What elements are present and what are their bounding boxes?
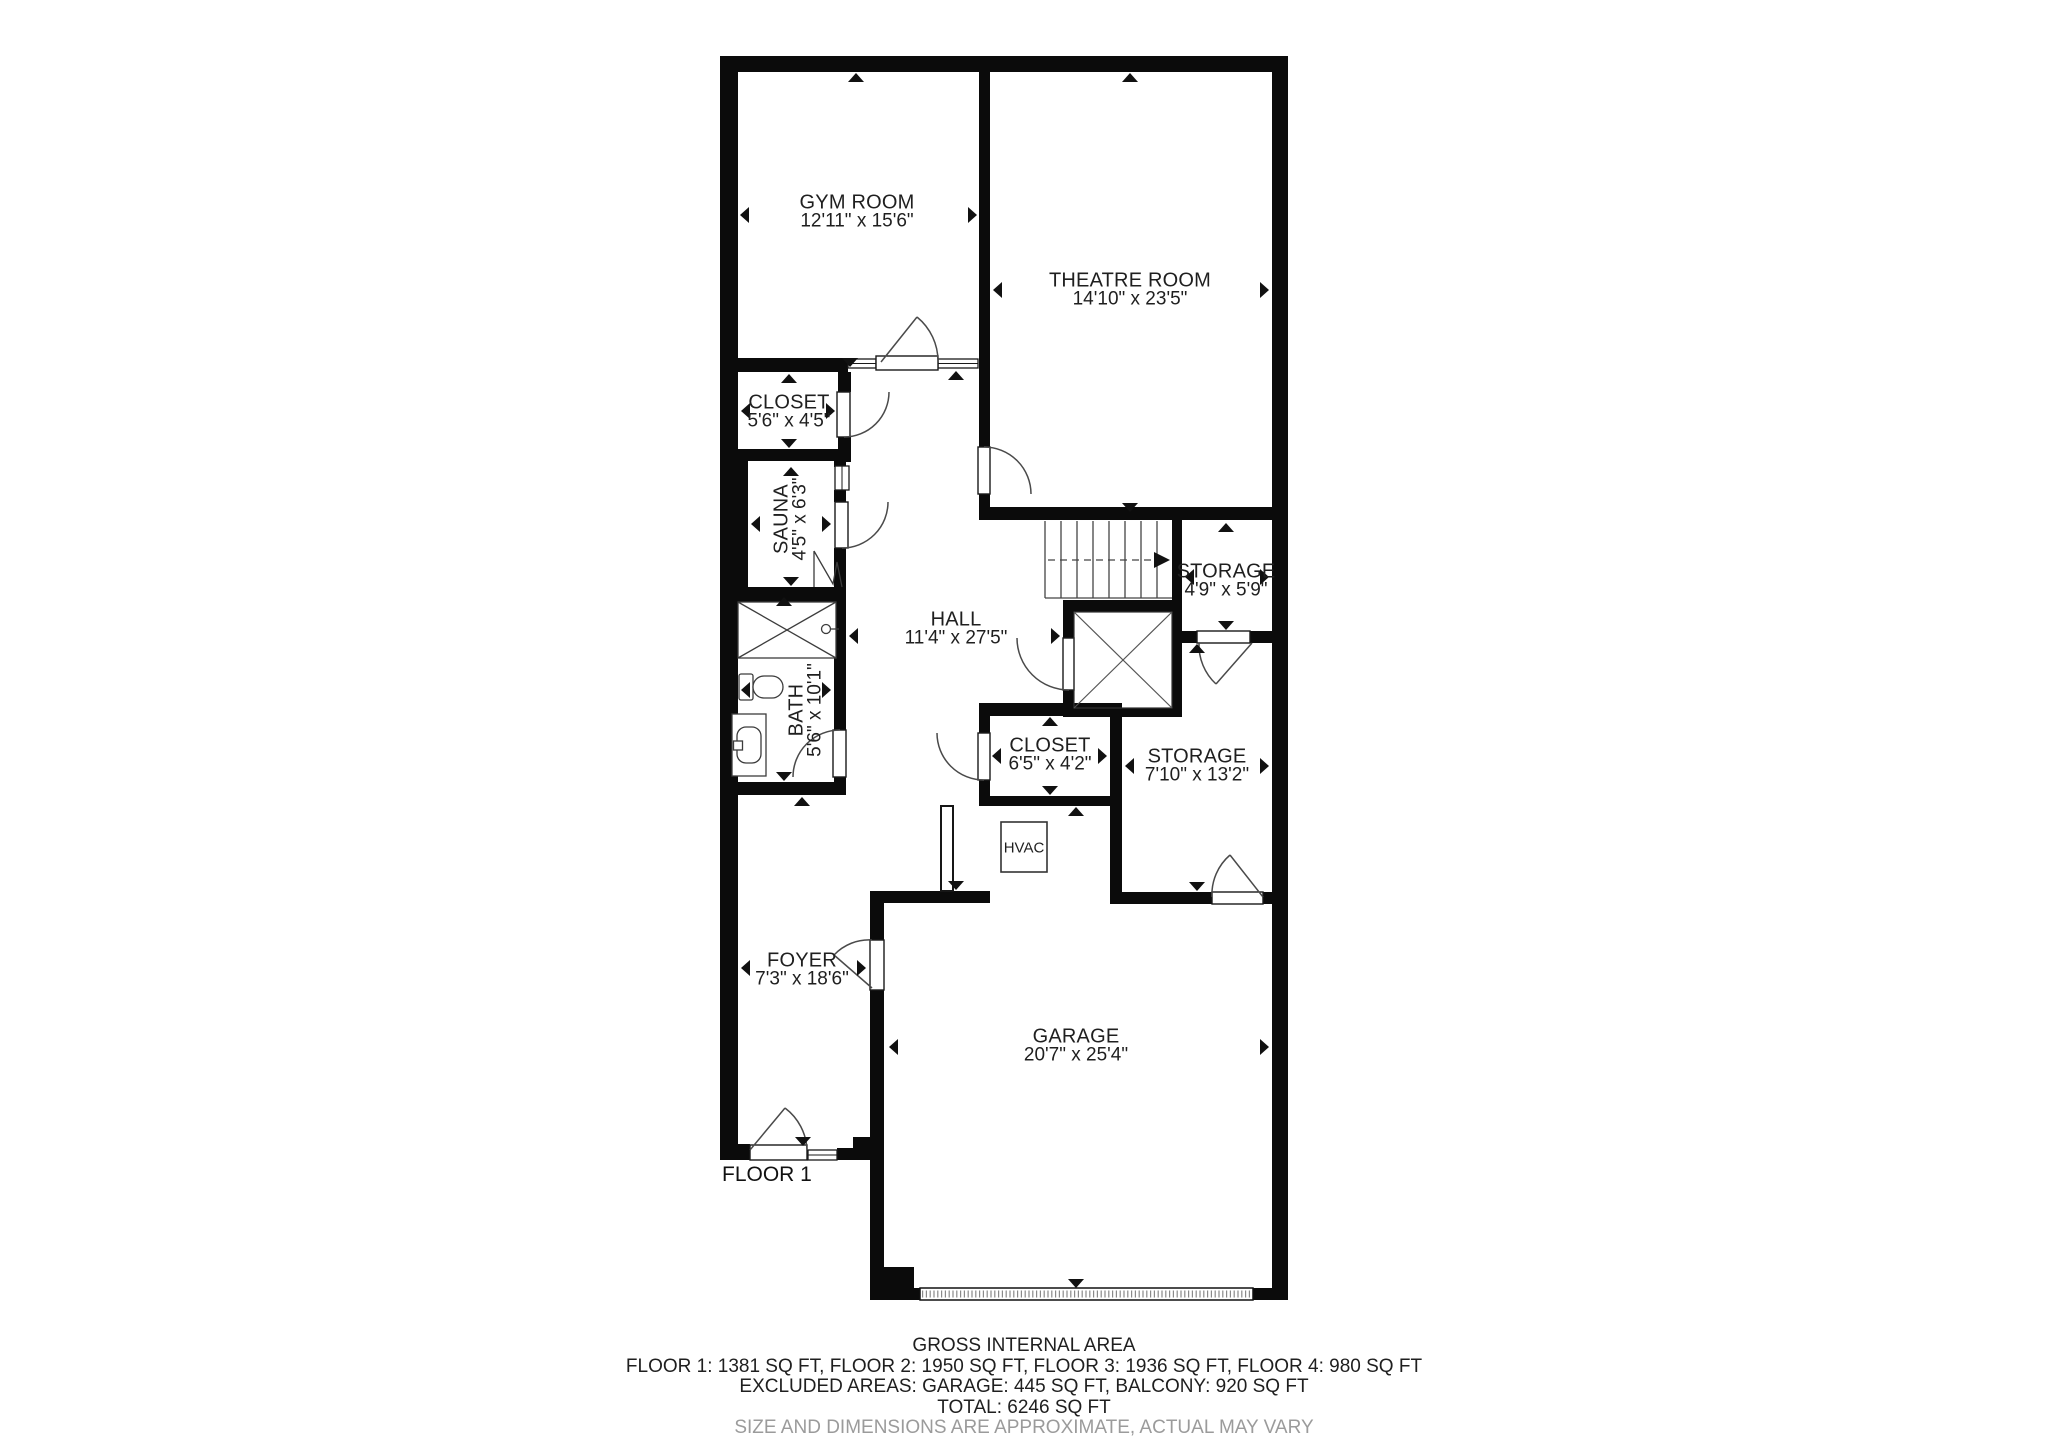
room-name: CLOSET [1008, 738, 1091, 756]
room-label-garage: GARAGE 20'7" x 25'4" [1024, 1029, 1128, 1064]
room-dims: 7'10" x 13'2" [1145, 766, 1249, 784]
dimension-arrow [1068, 807, 1084, 816]
dimension-arrow [992, 748, 1001, 764]
room-dims: 7'3" x 18'6" [755, 970, 849, 988]
wall-segment [979, 796, 1122, 806]
room-label-hvac: HVAC [1004, 840, 1045, 857]
door-arcs [750, 317, 1263, 1150]
shower [738, 602, 839, 658]
wall-segment [979, 716, 990, 733]
wall-segment [1172, 520, 1182, 717]
room-name: FOYER [755, 953, 849, 971]
dimension-arrow [794, 797, 810, 806]
door-leaf [1063, 638, 1074, 690]
dimension-arrow [741, 960, 750, 976]
room-name: SAUNA [774, 477, 792, 560]
wall-segment [738, 449, 851, 461]
room-label-hall: HALL 11'4" x 27'5" [905, 612, 1008, 647]
room-dims: 4'5" x 6'3" [791, 477, 809, 560]
dimension-arrow [783, 467, 799, 476]
dimension-arrow [1260, 282, 1269, 298]
wall-segment [979, 507, 1272, 520]
floorplan-page: GYM ROOM 12'11" x 15'6" THEATRE ROOM 14'… [0, 0, 2048, 1447]
area-summary-disclaimer: SIZE AND DIMENSIONS ARE APPROXIMATE, ACT… [0, 1418, 2048, 1439]
dimension-arrow [781, 374, 797, 383]
door-leaf [750, 1145, 807, 1160]
dimension-arrow [1068, 1279, 1084, 1288]
room-label-theatre-room: THEATRE ROOM 14'10" x 23'5" [1049, 273, 1211, 308]
door-leaf [978, 447, 990, 494]
wall-segment [853, 1137, 884, 1160]
wall-segment [979, 72, 990, 447]
wall-segment [870, 1288, 922, 1300]
stairs-direction-arrow [1154, 552, 1170, 568]
area-summary-title: GROSS INTERNAL AREA [0, 1336, 2048, 1357]
wall-segment [738, 358, 848, 372]
door-arc [844, 392, 889, 437]
area-summary: GROSS INTERNAL AREA FLOOR 1: 1381 SQ FT,… [0, 1336, 2048, 1439]
wall-segment [1272, 56, 1288, 1300]
room-label-bath: BATH 5'6" x 10'1" [789, 663, 824, 757]
dimension-arrow [1098, 748, 1107, 764]
floorplan-drawing [0, 0, 2048, 1447]
room-dims: 4'9" x 5'9" [1177, 581, 1276, 599]
wall-segment [1253, 1288, 1288, 1300]
dimension-arrow [783, 577, 799, 586]
wall-segment [1250, 631, 1288, 643]
dimension-arrow [1122, 73, 1138, 82]
wall-segment [838, 372, 851, 392]
floor-tag: FLOOR 1 [722, 1163, 812, 1187]
room-name: STORAGE [1145, 749, 1249, 767]
door-arc [1017, 638, 1069, 690]
dimension-arrow [948, 371, 964, 380]
dimension-arrow [776, 772, 792, 781]
door-arc [1199, 643, 1252, 684]
thin-partition-wall [941, 806, 953, 891]
room-label-gym-room: GYM ROOM 12'11" x 15'6" [800, 195, 915, 230]
wall-segment [738, 461, 748, 595]
area-summary-total: TOTAL: 6246 SQ FT [0, 1398, 2048, 1419]
room-name: CLOSET [747, 395, 830, 413]
room-label-storage-small: STORAGE 4'9" x 5'9" [1177, 564, 1276, 599]
room-label-sauna: SAUNA 4'5" x 6'3" [774, 477, 809, 560]
wall-segment [834, 490, 846, 502]
dimension-arrow [1051, 628, 1060, 644]
staircase [1045, 521, 1172, 598]
door-leaf [876, 356, 938, 370]
door-arc [881, 317, 938, 362]
dimension-arrow [849, 628, 858, 644]
dimension-arrow [822, 516, 831, 532]
wall-segment [1063, 708, 1182, 717]
dimension-arrow [1260, 758, 1269, 774]
dimension-arrow [781, 439, 797, 448]
room-dims: 6'5" x 4'2" [1008, 755, 1091, 773]
dimension-arrow [1218, 523, 1234, 532]
garage-door [920, 1288, 1253, 1300]
dimension-arrow [1042, 786, 1058, 795]
dimension-arrow [889, 1039, 898, 1055]
dimension-arrow [751, 516, 760, 532]
room-label-closet-mid: CLOSET 6'5" x 4'2" [1008, 738, 1091, 773]
door-leaf [1212, 892, 1263, 904]
room-name: HALL [905, 612, 1008, 630]
door-leaf [837, 392, 850, 437]
wall-segment [870, 891, 990, 903]
elevator-shaft [1074, 612, 1172, 708]
door-leaf [1197, 631, 1250, 643]
wall-segment [1172, 631, 1197, 643]
dimension-arrow [1189, 644, 1205, 653]
dimension-arrow [848, 73, 864, 82]
dimension-arrow [1260, 1039, 1269, 1055]
dimension-arrow [857, 960, 866, 976]
wall-segment [1263, 892, 1288, 904]
door-leaf [978, 733, 990, 780]
wall-segment [1110, 716, 1122, 903]
door-leaf [870, 940, 884, 990]
dimension-arrow [1125, 758, 1134, 774]
dimension-arrow [968, 207, 977, 223]
room-dims: 11'4" x 27'5" [905, 629, 1008, 647]
door-leaf [835, 502, 848, 548]
room-name: STORAGE [1177, 564, 1276, 582]
room-name: GYM ROOM [800, 195, 915, 213]
wall-segment [720, 56, 738, 1160]
room-dims: 5'6" x 4'5" [747, 412, 830, 430]
door-leaf [833, 730, 846, 777]
dimension-arrow [1189, 882, 1205, 891]
room-label-storage-big: STORAGE 7'10" x 13'2" [1145, 749, 1249, 784]
room-name: GARAGE [1024, 1029, 1128, 1047]
wall-segment [720, 1144, 750, 1160]
room-dims: 20'7" x 25'4" [1024, 1046, 1128, 1064]
area-summary-excluded: EXCLUDED AREAS: GARAGE: 445 SQ FT, BALCO… [0, 1377, 2048, 1398]
door-arc [750, 1108, 807, 1150]
dimension-arrow [740, 207, 749, 223]
sink-vanity [732, 714, 766, 776]
area-summary-floors: FLOOR 1: 1381 SQ FT, FLOOR 2: 1950 SQ FT… [0, 1357, 2048, 1378]
wall-segment [1063, 600, 1182, 612]
room-name: THEATRE ROOM [1049, 273, 1211, 291]
dimension-arrow [1218, 621, 1234, 630]
door-arc [1212, 855, 1263, 897]
wall-segment [1110, 892, 1212, 904]
dimension-arrow [993, 282, 1002, 298]
door-arc [842, 502, 888, 548]
door-arc [937, 733, 984, 780]
wall-segment [979, 493, 990, 509]
wall-segment [720, 782, 846, 795]
room-label-closet-upper: CLOSET 5'6" x 4'5" [747, 395, 830, 430]
wall-segment [720, 56, 1288, 72]
room-dims: 14'10" x 23'5" [1049, 290, 1211, 308]
room-dims: 12'11" x 15'6" [800, 212, 915, 230]
room-dims: 5'6" x 10'1" [806, 663, 824, 757]
door-arc [984, 447, 1031, 494]
room-name: BATH [789, 663, 807, 757]
dimension-arrow [1042, 717, 1058, 726]
room-label-foyer: FOYER 7'3" x 18'6" [755, 953, 849, 988]
